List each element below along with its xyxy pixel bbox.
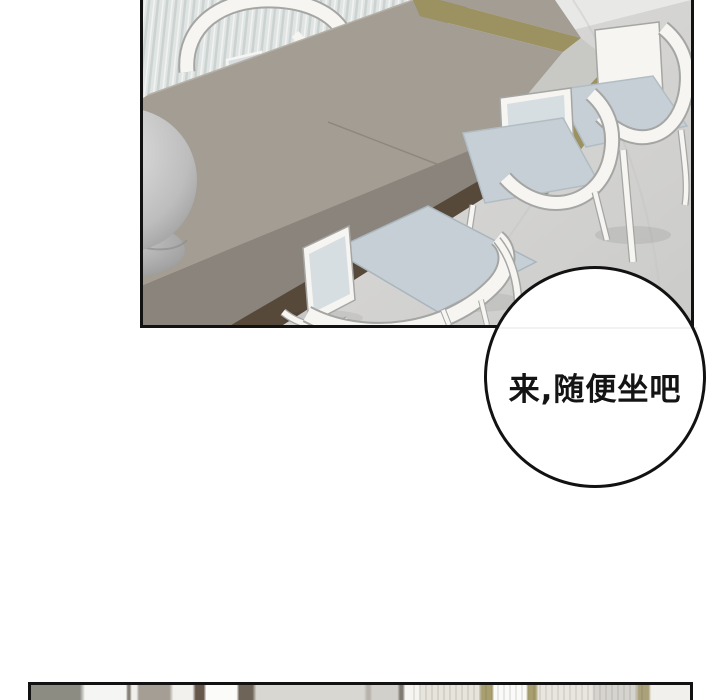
panel-border-ghost-line bbox=[493, 327, 697, 329]
speech-bubble: 来,随便坐吧 bbox=[484, 266, 706, 488]
speech-bubble-text: 来,随便坐吧 bbox=[487, 373, 703, 407]
next-scene-curtain-stripes bbox=[413, 685, 644, 700]
panel-bottom-frame bbox=[28, 682, 693, 700]
comic-page: { "page": { "type": "webtoon-comic-page"… bbox=[0, 0, 720, 700]
